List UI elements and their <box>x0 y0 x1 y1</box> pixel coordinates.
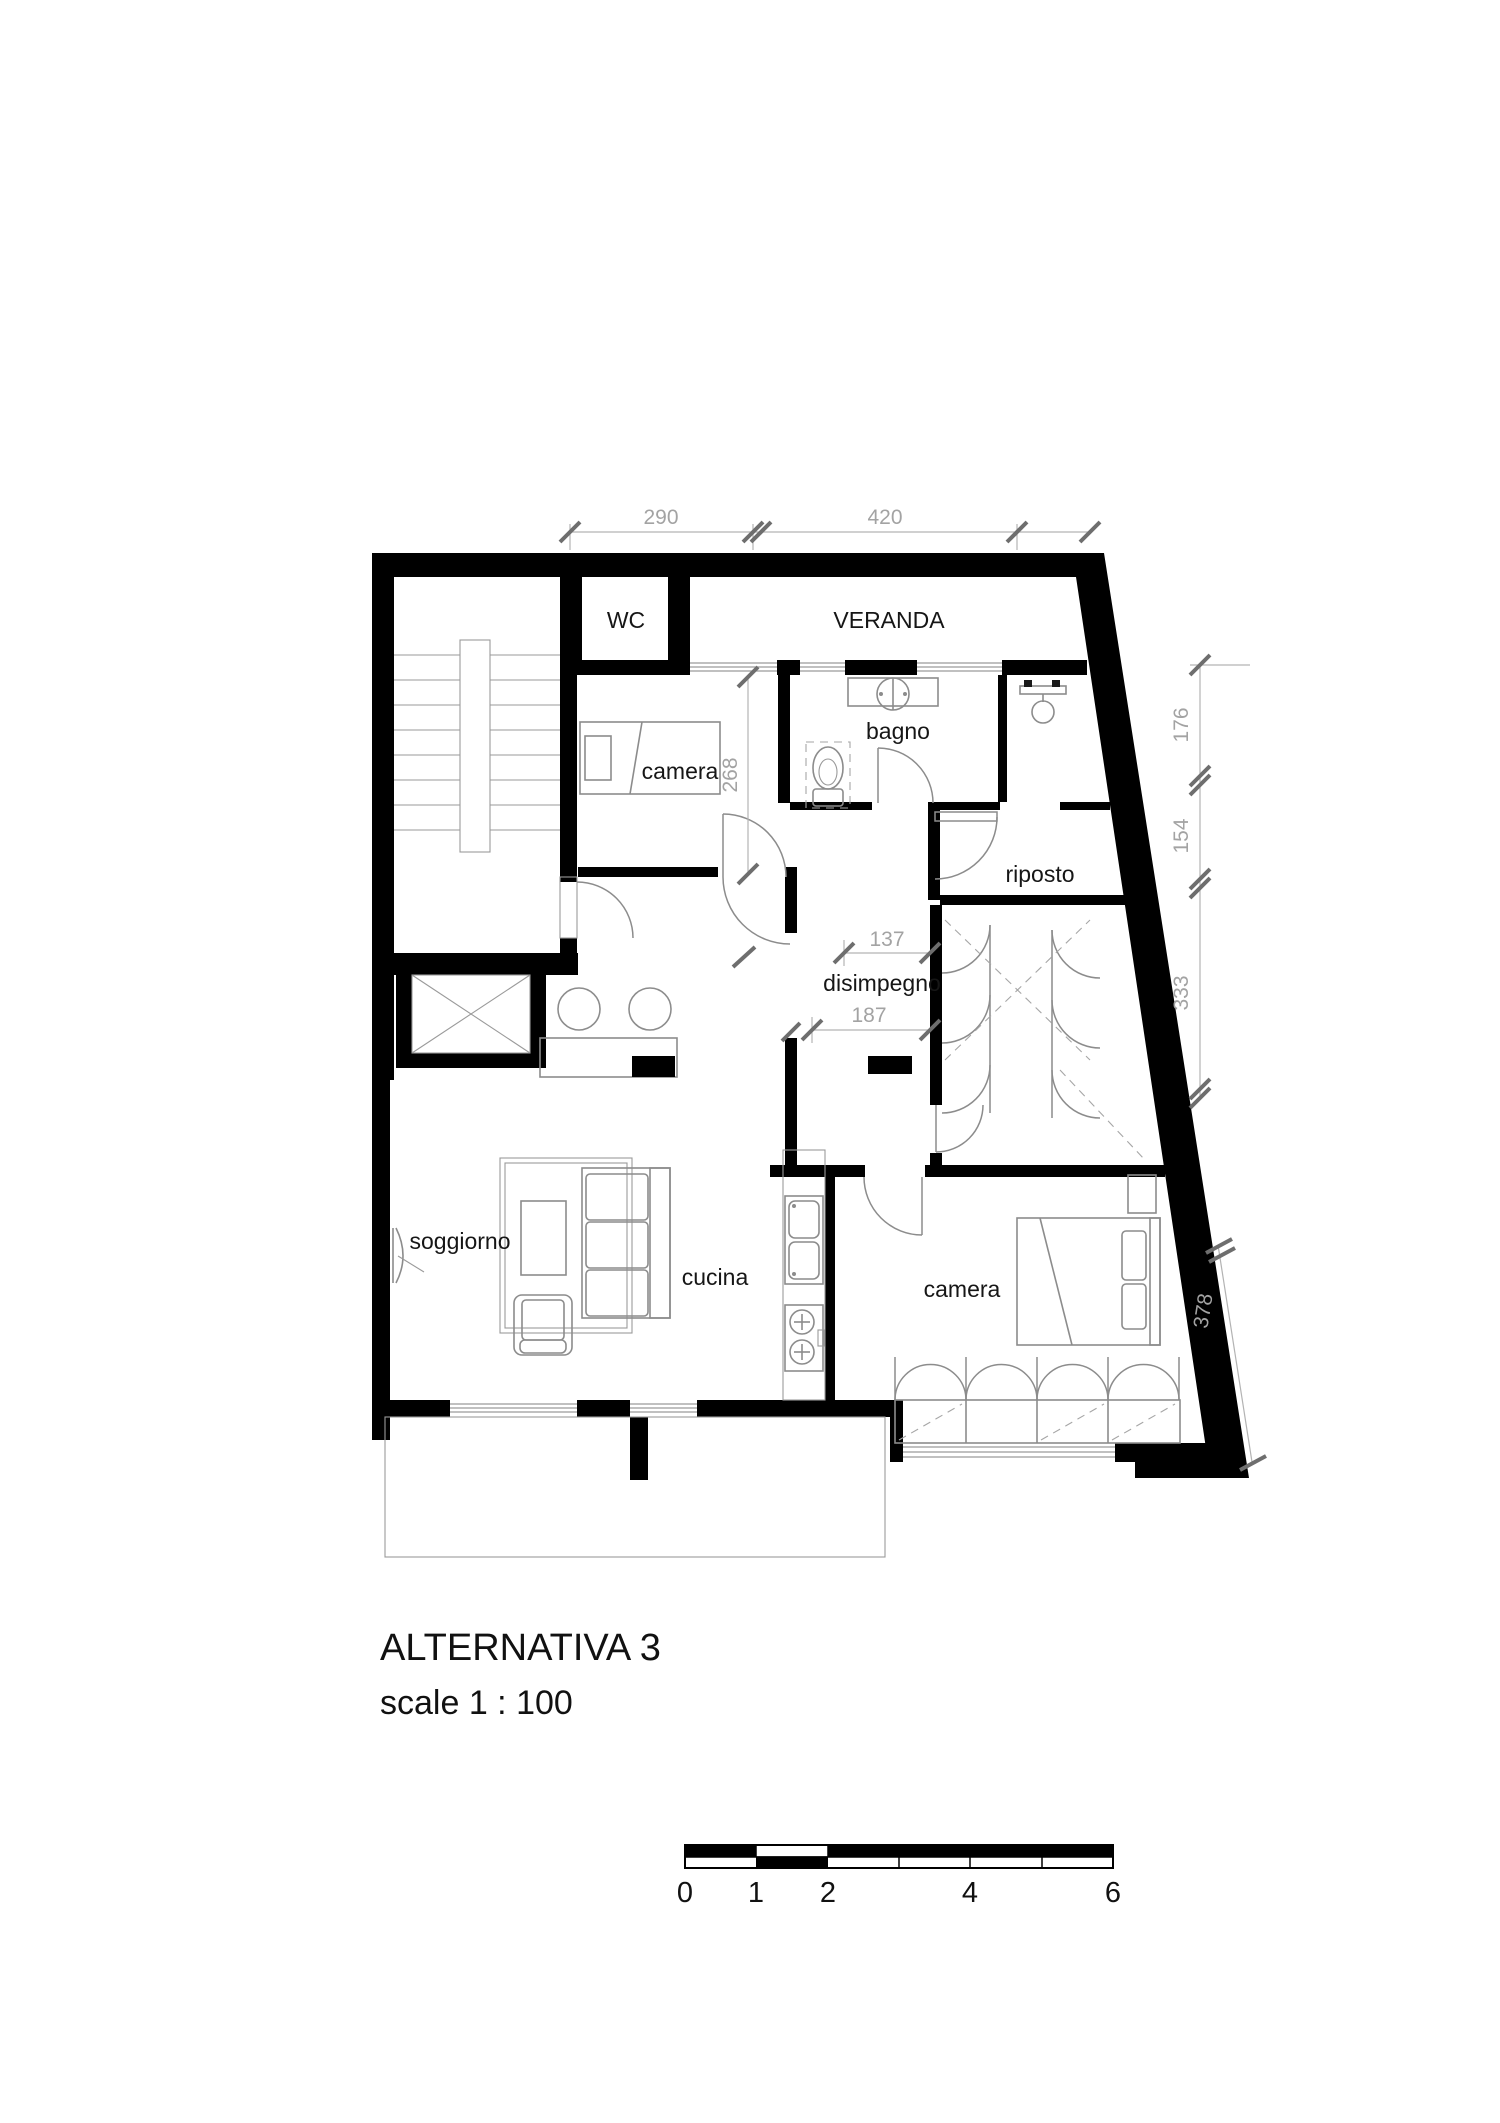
camera-bottom-furniture <box>895 1175 1180 1443</box>
wall-segment <box>785 877 797 933</box>
break-tick <box>733 947 755 967</box>
wall-segment <box>565 660 690 675</box>
dim-top: 290 420 <box>560 506 1100 550</box>
room-label-camera-top: camera <box>642 758 719 784</box>
elevator <box>412 975 530 1053</box>
sofa-symbol <box>582 1168 670 1318</box>
door-camera-bottom-swing <box>864 1177 922 1235</box>
dim-right: 176 154 333 <box>1170 655 1250 1108</box>
elevator-cross <box>412 975 530 1053</box>
door-bagno-swing <box>878 748 933 803</box>
door-hall-swing <box>723 877 790 944</box>
stove-symbol <box>785 1305 824 1371</box>
disimpegno-furniture <box>868 1056 912 1074</box>
wall-segment <box>560 938 577 953</box>
room-label-cucina: cucina <box>682 1264 749 1290</box>
floor-plan-sheet: 290 420 176 154 333 268 <box>0 0 1500 2123</box>
living-room-window <box>450 1404 697 1412</box>
room-label-riposto: riposto <box>1005 861 1074 887</box>
scale-label-6: 6 <box>1105 1877 1121 1909</box>
shower-symbol <box>1020 680 1066 723</box>
armchair-symbol <box>514 1295 572 1355</box>
wall-segment <box>998 675 1007 802</box>
wall-segment <box>1060 802 1110 810</box>
wall-segment <box>778 675 790 803</box>
wall-segment <box>940 895 1130 905</box>
cabinet-symbol <box>868 1056 912 1074</box>
title-block: ALTERNATIVA 3 scale 1 : 100 <box>380 1627 661 1722</box>
wall-segment <box>825 1177 835 1402</box>
toilet-symbol <box>806 742 850 808</box>
bedroom-window <box>903 1447 1115 1457</box>
coffee-table-symbol <box>521 1201 566 1275</box>
scale-bar-labels: 0 1 2 4 6 <box>677 1877 1121 1909</box>
wall-segment <box>372 1400 450 1417</box>
kitchen-sink-symbol <box>785 1196 823 1284</box>
wall-segment <box>577 1400 630 1417</box>
kitchen-fixtures <box>783 1150 825 1400</box>
double-bed-symbol <box>1017 1175 1160 1345</box>
room-label-disimpegno: disimpegno <box>823 970 941 996</box>
stair-treads <box>394 640 560 852</box>
wall-segment <box>930 1153 942 1167</box>
entry-opening <box>560 877 577 938</box>
wall-segment <box>786 867 797 877</box>
room-label-bagno: bagno <box>866 718 930 744</box>
wardrobe-room-furniture <box>942 920 1145 1160</box>
dim-333: 333 <box>1170 975 1193 1010</box>
scale-label-2: 2 <box>820 1877 836 1909</box>
room-label-wc: WC <box>607 607 645 633</box>
room-label-camera-bottom: camera <box>924 1276 1001 1302</box>
door-entry-swing <box>577 882 633 938</box>
scale-label-4: 4 <box>962 1877 978 1909</box>
wardrobe-doors <box>895 1357 1180 1443</box>
wall-segment <box>928 802 948 810</box>
wall-segment <box>845 660 917 675</box>
room-label-soggiorno: soggiorno <box>409 1228 510 1254</box>
wall-segment <box>1002 660 1087 675</box>
room-label-veranda: VERANDA <box>833 607 945 633</box>
wall-segment <box>372 1068 390 1440</box>
door-wardrobe-swing <box>936 1105 983 1152</box>
wall-segment <box>372 553 394 1080</box>
dim-176: 176 <box>1170 707 1193 742</box>
wall-segment <box>530 965 546 1065</box>
wall-segment <box>777 660 800 675</box>
dim-290: 290 <box>643 506 678 529</box>
dim-187: 187 <box>851 1004 886 1027</box>
washbasin-symbol <box>848 678 938 710</box>
wall-segment <box>928 810 940 900</box>
wall-segment <box>396 1053 546 1068</box>
wall-segment <box>890 1400 903 1462</box>
wall-segment <box>396 965 412 1065</box>
walls <box>372 553 1249 1480</box>
wall-segment <box>630 1417 648 1480</box>
wall-segment <box>372 553 1092 577</box>
bagno-fixtures <box>806 678 1066 808</box>
closet-doors-left <box>942 925 990 1113</box>
stool-symbol <box>629 988 671 1030</box>
closet-diagonal <box>1060 1070 1145 1160</box>
wall-segment <box>930 905 942 1105</box>
wall-slanted <box>1076 553 1249 1478</box>
dim-137: 137 <box>869 928 904 951</box>
scale-bar: 0 1 2 4 6 <box>677 1845 1121 1909</box>
dim-268-label: 268 <box>719 757 742 792</box>
scale-label-0: 0 <box>677 1877 693 1909</box>
counter-symbol <box>540 1038 677 1077</box>
wall-segment <box>770 1165 865 1177</box>
wall-segment <box>948 802 1000 810</box>
dim-268: 268 <box>719 667 758 884</box>
dim-154: 154 <box>1170 818 1193 853</box>
wall-segment <box>697 1400 890 1417</box>
drawing-scale-note: scale 1 : 100 <box>380 1684 573 1722</box>
closet-doors-right <box>1052 930 1100 1118</box>
floor-plan-drawing: 290 420 176 154 333 268 <box>0 0 1500 2123</box>
dim-420: 420 <box>867 506 902 529</box>
stairwell <box>394 640 560 852</box>
scale-label-1: 1 <box>748 1877 764 1909</box>
wall-segment <box>1115 1443 1208 1462</box>
door-riposto-swing <box>935 812 997 879</box>
stool-symbol <box>558 988 600 1030</box>
drawing-title: ALTERNATIVA 3 <box>380 1627 661 1669</box>
wall-segment <box>578 867 718 877</box>
wall-segment <box>785 1038 797 1167</box>
